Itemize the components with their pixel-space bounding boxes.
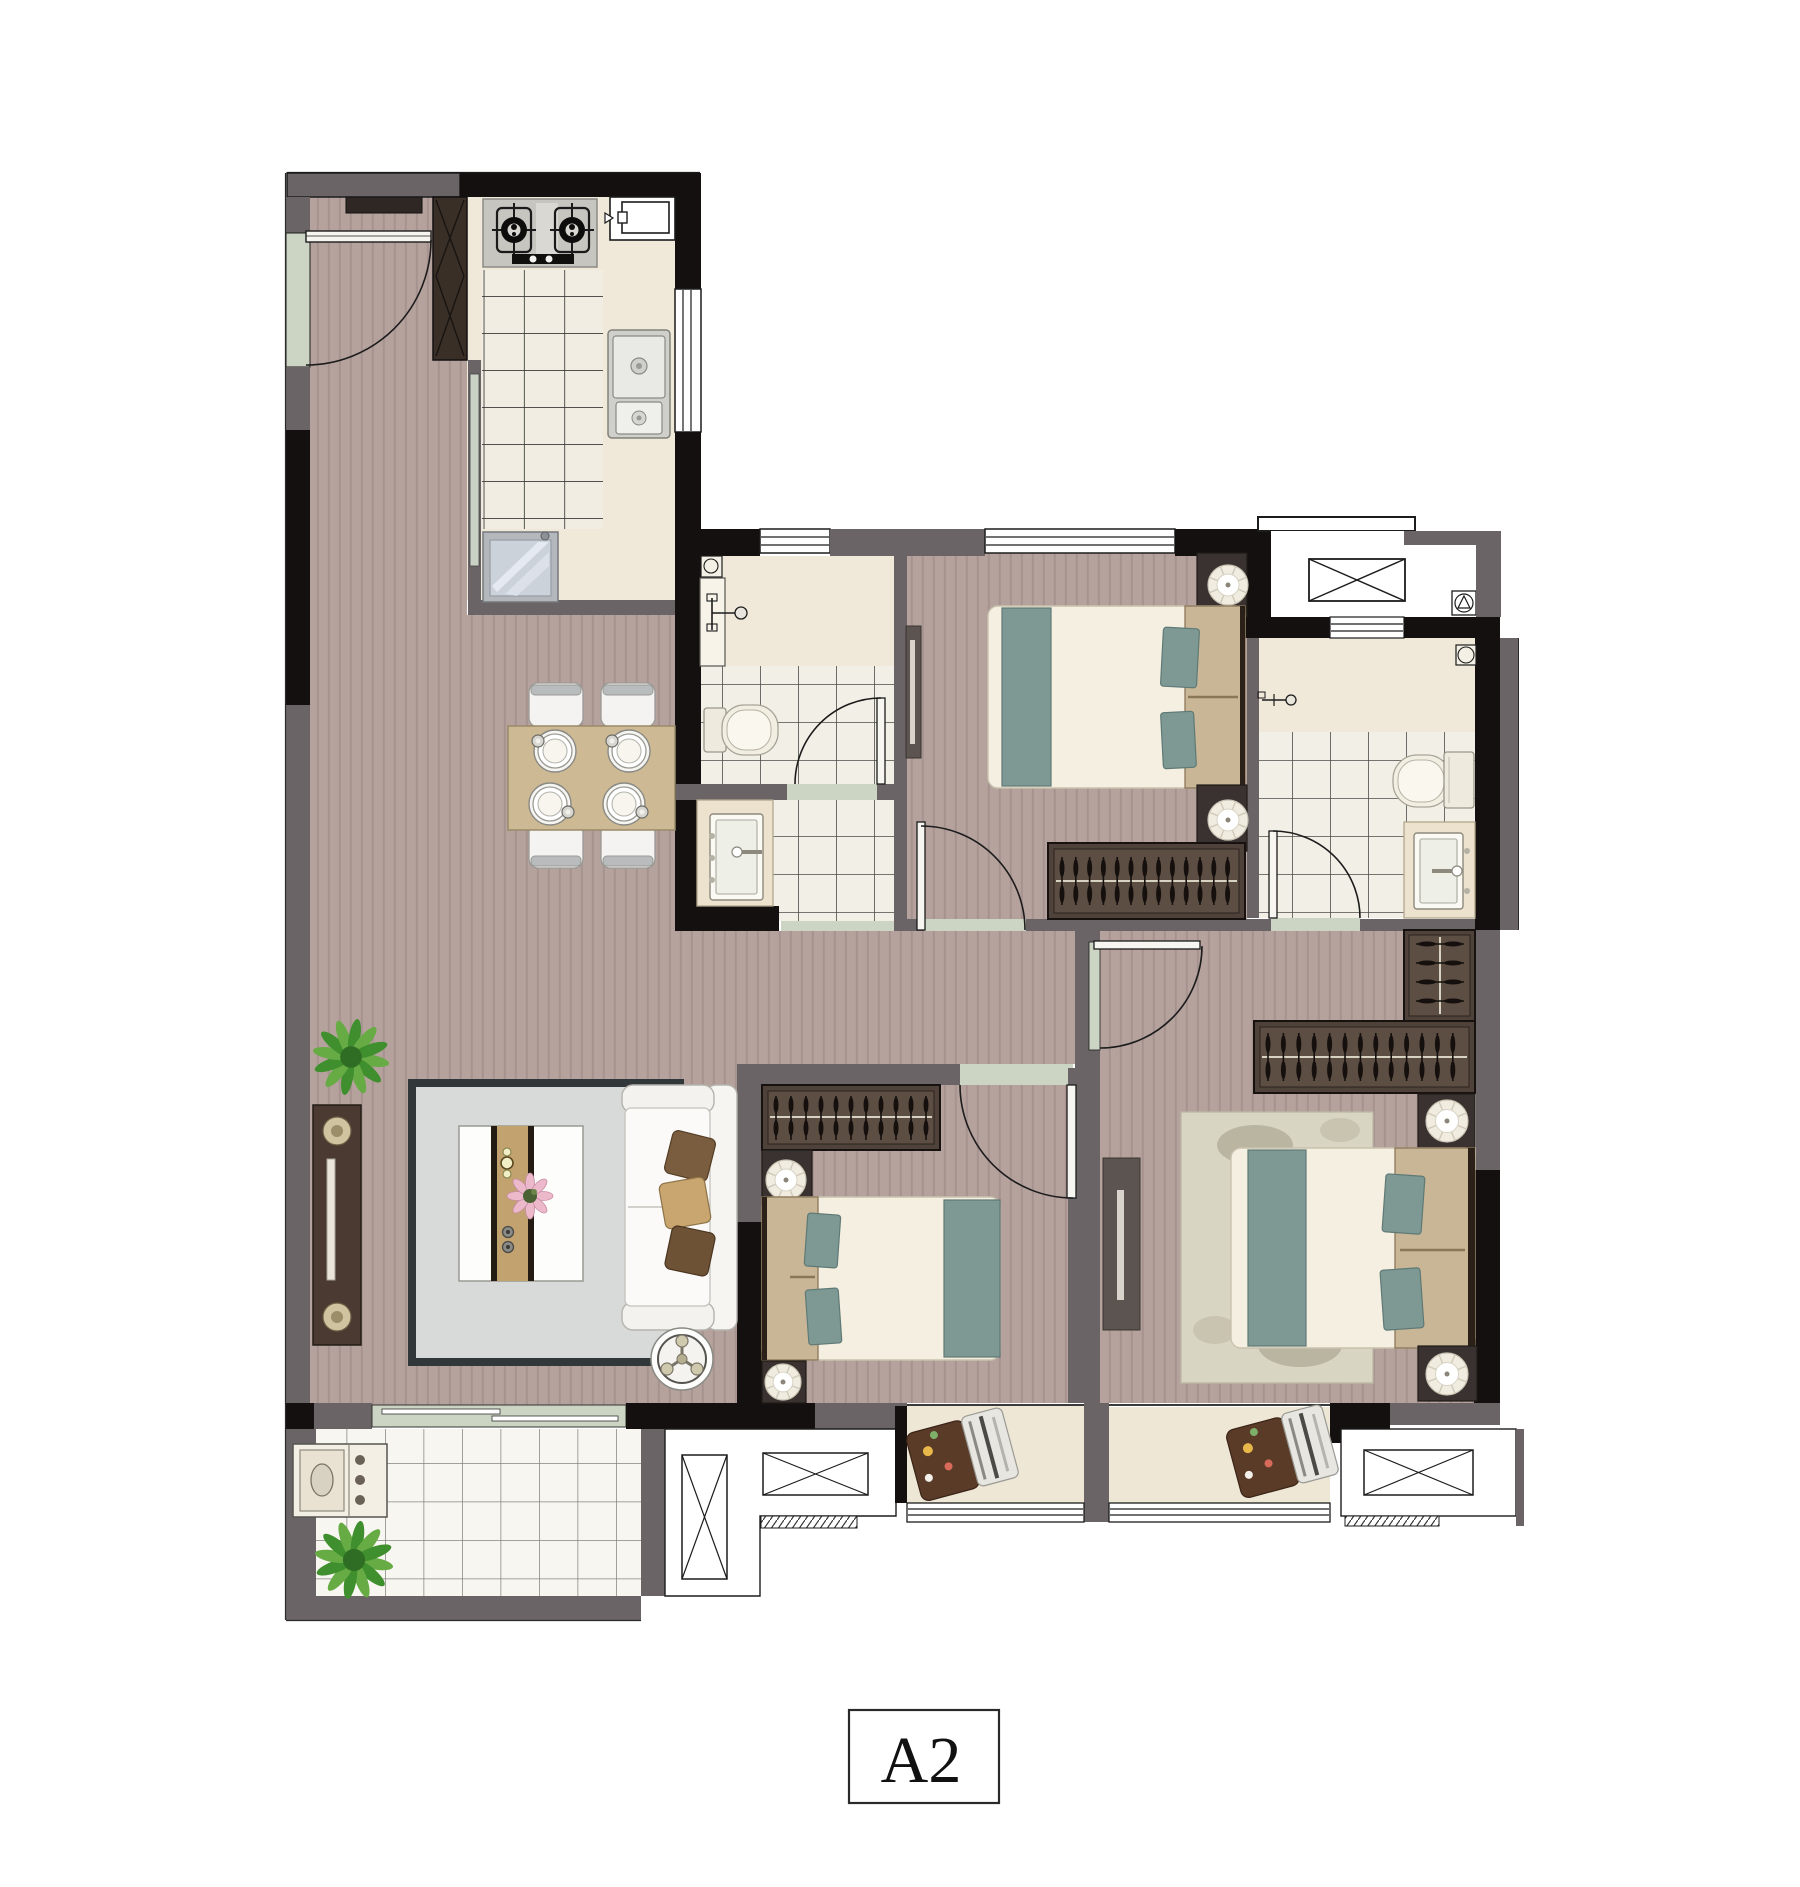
svg-text:A2: A2 (881, 1724, 962, 1797)
